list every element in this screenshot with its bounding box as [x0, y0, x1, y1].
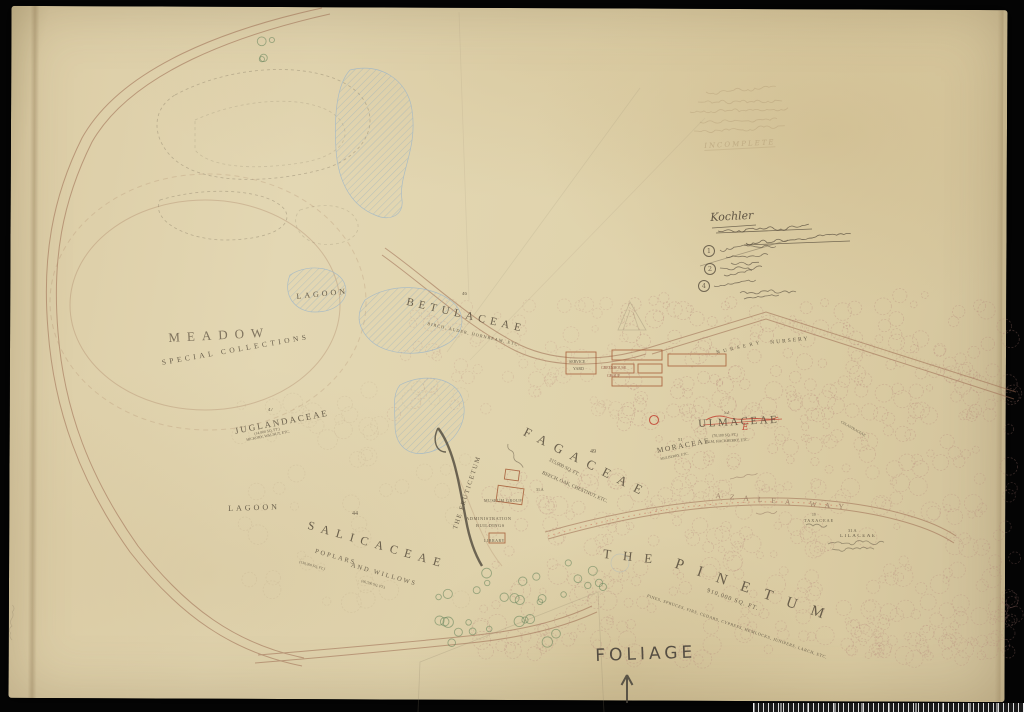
- annotation-foliage: FOLIAGE: [595, 642, 697, 666]
- annotation-circled-4: 4: [698, 280, 710, 292]
- annotation-circled-2: 2: [704, 263, 716, 275]
- label-taxaceae-num: 19: [812, 513, 816, 517]
- map-linework: [0, 0, 1024, 712]
- label-lilaceae-num: 31 A: [848, 528, 857, 533]
- label-juglandaceae-num: 47: [268, 408, 273, 413]
- label-salicaceae-num: 44: [352, 511, 358, 517]
- label-ulmaceae-num: 52: [724, 411, 729, 416]
- red-annotations: [548, 416, 838, 537]
- label-lagoon-lower: LAGOON: [228, 502, 280, 513]
- label-museum-group: MUSEUM GROUP: [484, 498, 522, 503]
- foliage-arrow: [622, 675, 633, 703]
- label-service-yard-1: SERVICE: [569, 359, 585, 364]
- annotation-circled-1: 1: [703, 245, 715, 257]
- dark-drive: [435, 428, 482, 566]
- label-ulmaceae-red-mark: E: [742, 423, 749, 433]
- label-lilaceae: LILACEAE: [840, 534, 876, 539]
- scanned-map-photo: MEADOW SPECIAL COLLECTIONS LAGOON LAGOON…: [0, 0, 1024, 712]
- label-fagaceae-plot: 31 A: [536, 487, 544, 492]
- label-fagaceae-num: 49: [590, 449, 596, 455]
- label-greenhouse-2: GROUP: [607, 374, 620, 378]
- label-buildings: BUILDINGS: [476, 523, 505, 528]
- label-taxaceae: TAXACEAE: [804, 518, 834, 523]
- annotation-kochler: Kochler: [710, 209, 754, 224]
- label-administration: ADMINISTRATION: [466, 516, 512, 521]
- label-library: LIBRARY: [484, 538, 505, 543]
- label-service-yard-2: YARD: [573, 366, 584, 371]
- scale-ruler: [753, 703, 1024, 712]
- label-greenhouse-1: GREENHOUSE: [601, 366, 626, 370]
- label-betulaceae-num: 46: [462, 292, 467, 297]
